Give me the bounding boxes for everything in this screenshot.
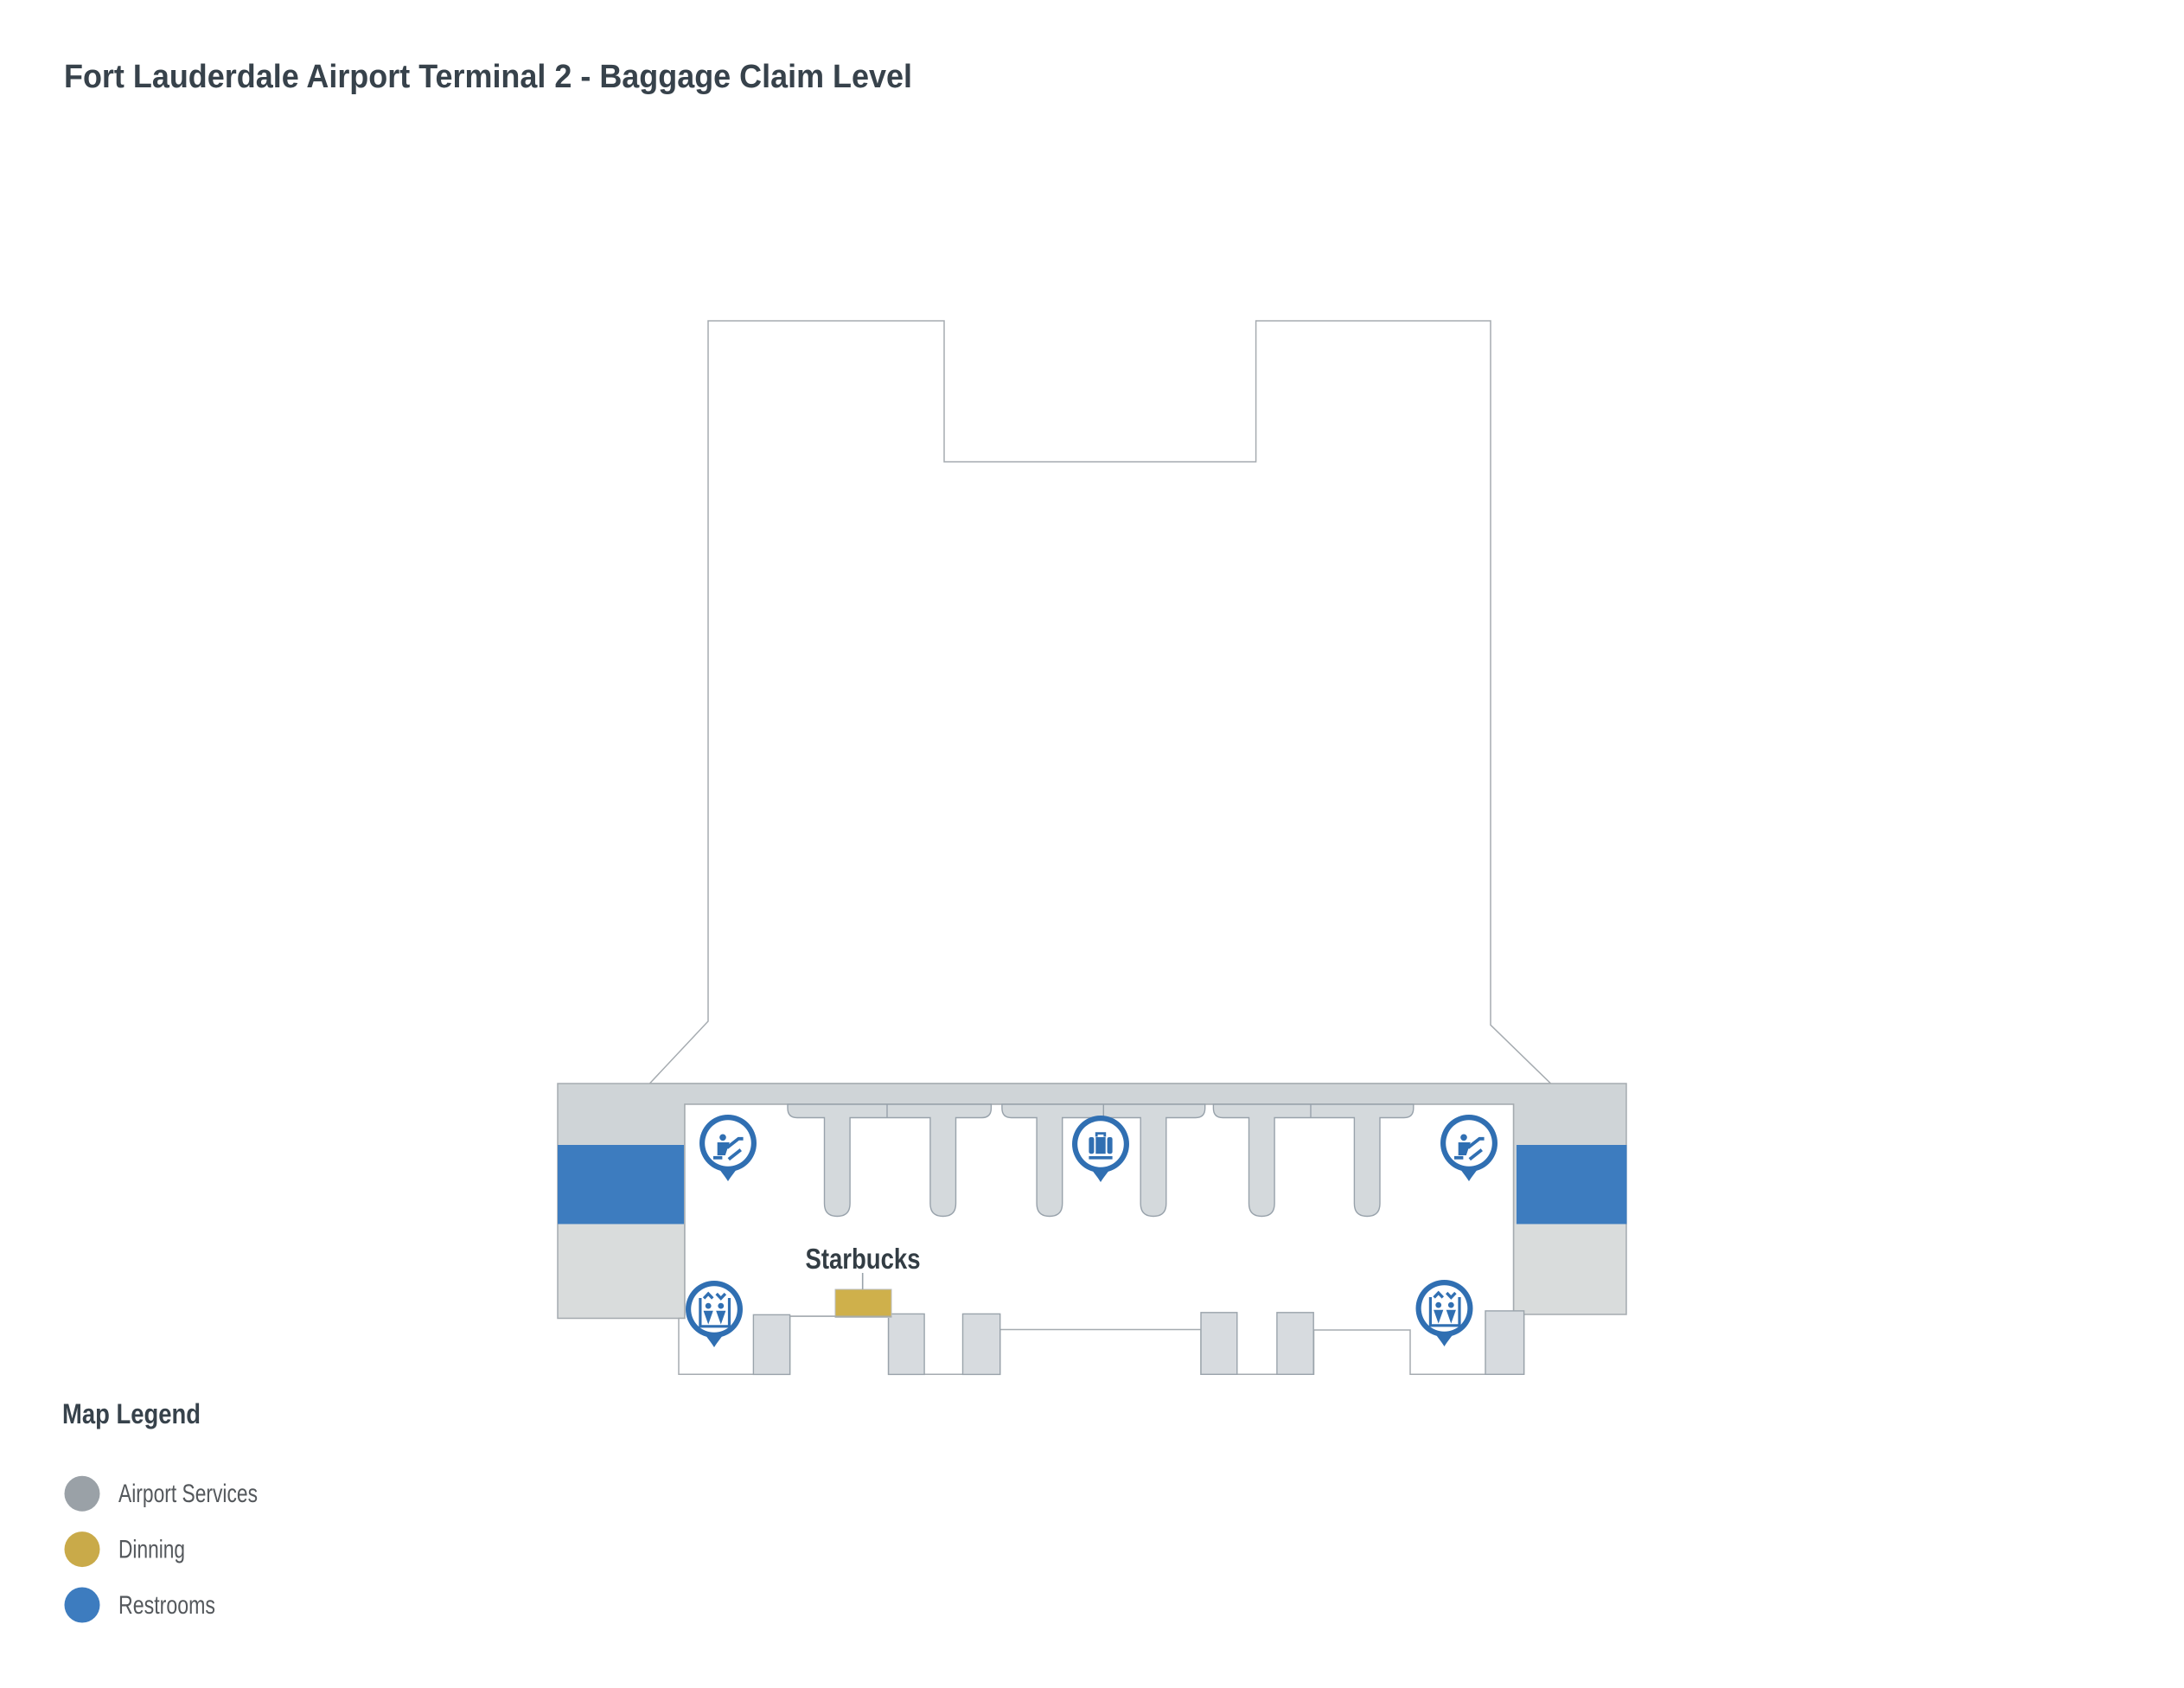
svg-text:Fort Lauderdale Airport Termin: Fort Lauderdale Airport Terminal 2 - Bag…	[64, 59, 912, 95]
svg-text:Dinning: Dinning	[118, 1536, 185, 1564]
svg-text:Starbucks: Starbucks	[806, 1243, 921, 1275]
svg-text:Airport Services: Airport Services	[118, 1480, 258, 1508]
svg-text:Restrooms: Restrooms	[118, 1591, 215, 1620]
svg-text:Map Legend: Map Legend	[62, 1398, 201, 1429]
